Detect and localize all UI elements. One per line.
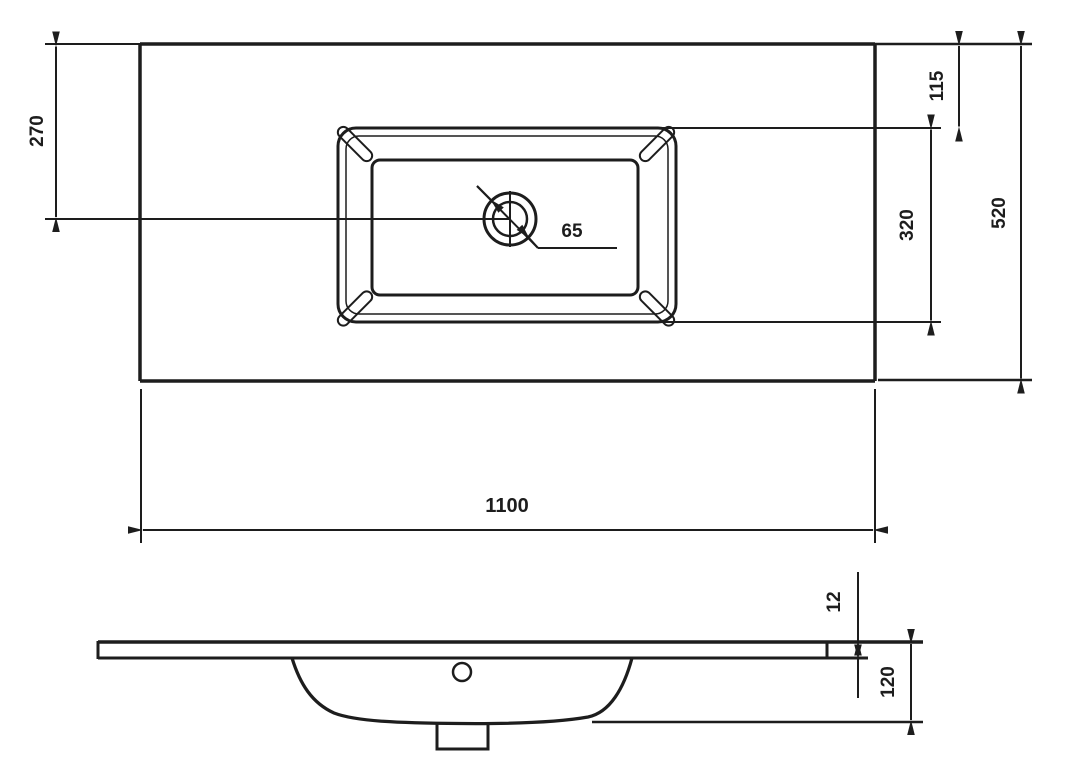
bowl-curve xyxy=(292,658,632,724)
basin-inner-rim-line xyxy=(346,136,668,314)
dimension-1100: 1100 xyxy=(141,389,875,543)
dimension-label-12: 12 xyxy=(824,591,845,612)
dimension-120: 120 xyxy=(878,644,911,720)
diameter-arrow-upper xyxy=(477,186,491,200)
faucet-hole xyxy=(45,191,536,247)
dimension-label-320: 320 xyxy=(897,209,918,241)
bowl-profile xyxy=(292,658,923,749)
dimension-320: 320 xyxy=(660,130,941,323)
dimension-270: 270 xyxy=(27,47,56,218)
dimension-12: 12 xyxy=(824,572,858,698)
corner-bevel-top-right xyxy=(638,125,677,164)
diameter-arrow-lower xyxy=(530,239,539,249)
corner-bevel-top-left xyxy=(336,125,375,164)
dimension-label-65: 65 xyxy=(561,221,583,242)
dimension-115: 115 xyxy=(660,46,959,128)
dimension-label-120: 120 xyxy=(878,666,899,698)
dimension-label-270: 270 xyxy=(27,115,48,147)
side-view: 12 120 xyxy=(98,572,923,749)
dimension-label-520: 520 xyxy=(989,197,1010,229)
slab-profile xyxy=(98,641,923,659)
basin-opening xyxy=(372,160,638,295)
dimension-label-115: 115 xyxy=(927,70,948,101)
drawing-svg: 65 270 115 320 520 1100 xyxy=(0,0,1074,776)
drain-outlet xyxy=(437,723,488,749)
dimension-label-1100: 1100 xyxy=(485,495,528,517)
countertop-outline xyxy=(45,44,1032,381)
technical-drawing-canvas: 65 270 115 320 520 1100 xyxy=(0,0,1074,776)
basin-outer-rim xyxy=(338,128,676,322)
basin-outline xyxy=(336,125,677,328)
overflow-hole xyxy=(453,663,471,681)
dimension-520: 520 xyxy=(989,46,1021,379)
top-view: 65 270 115 320 520 1100 xyxy=(27,44,1032,543)
